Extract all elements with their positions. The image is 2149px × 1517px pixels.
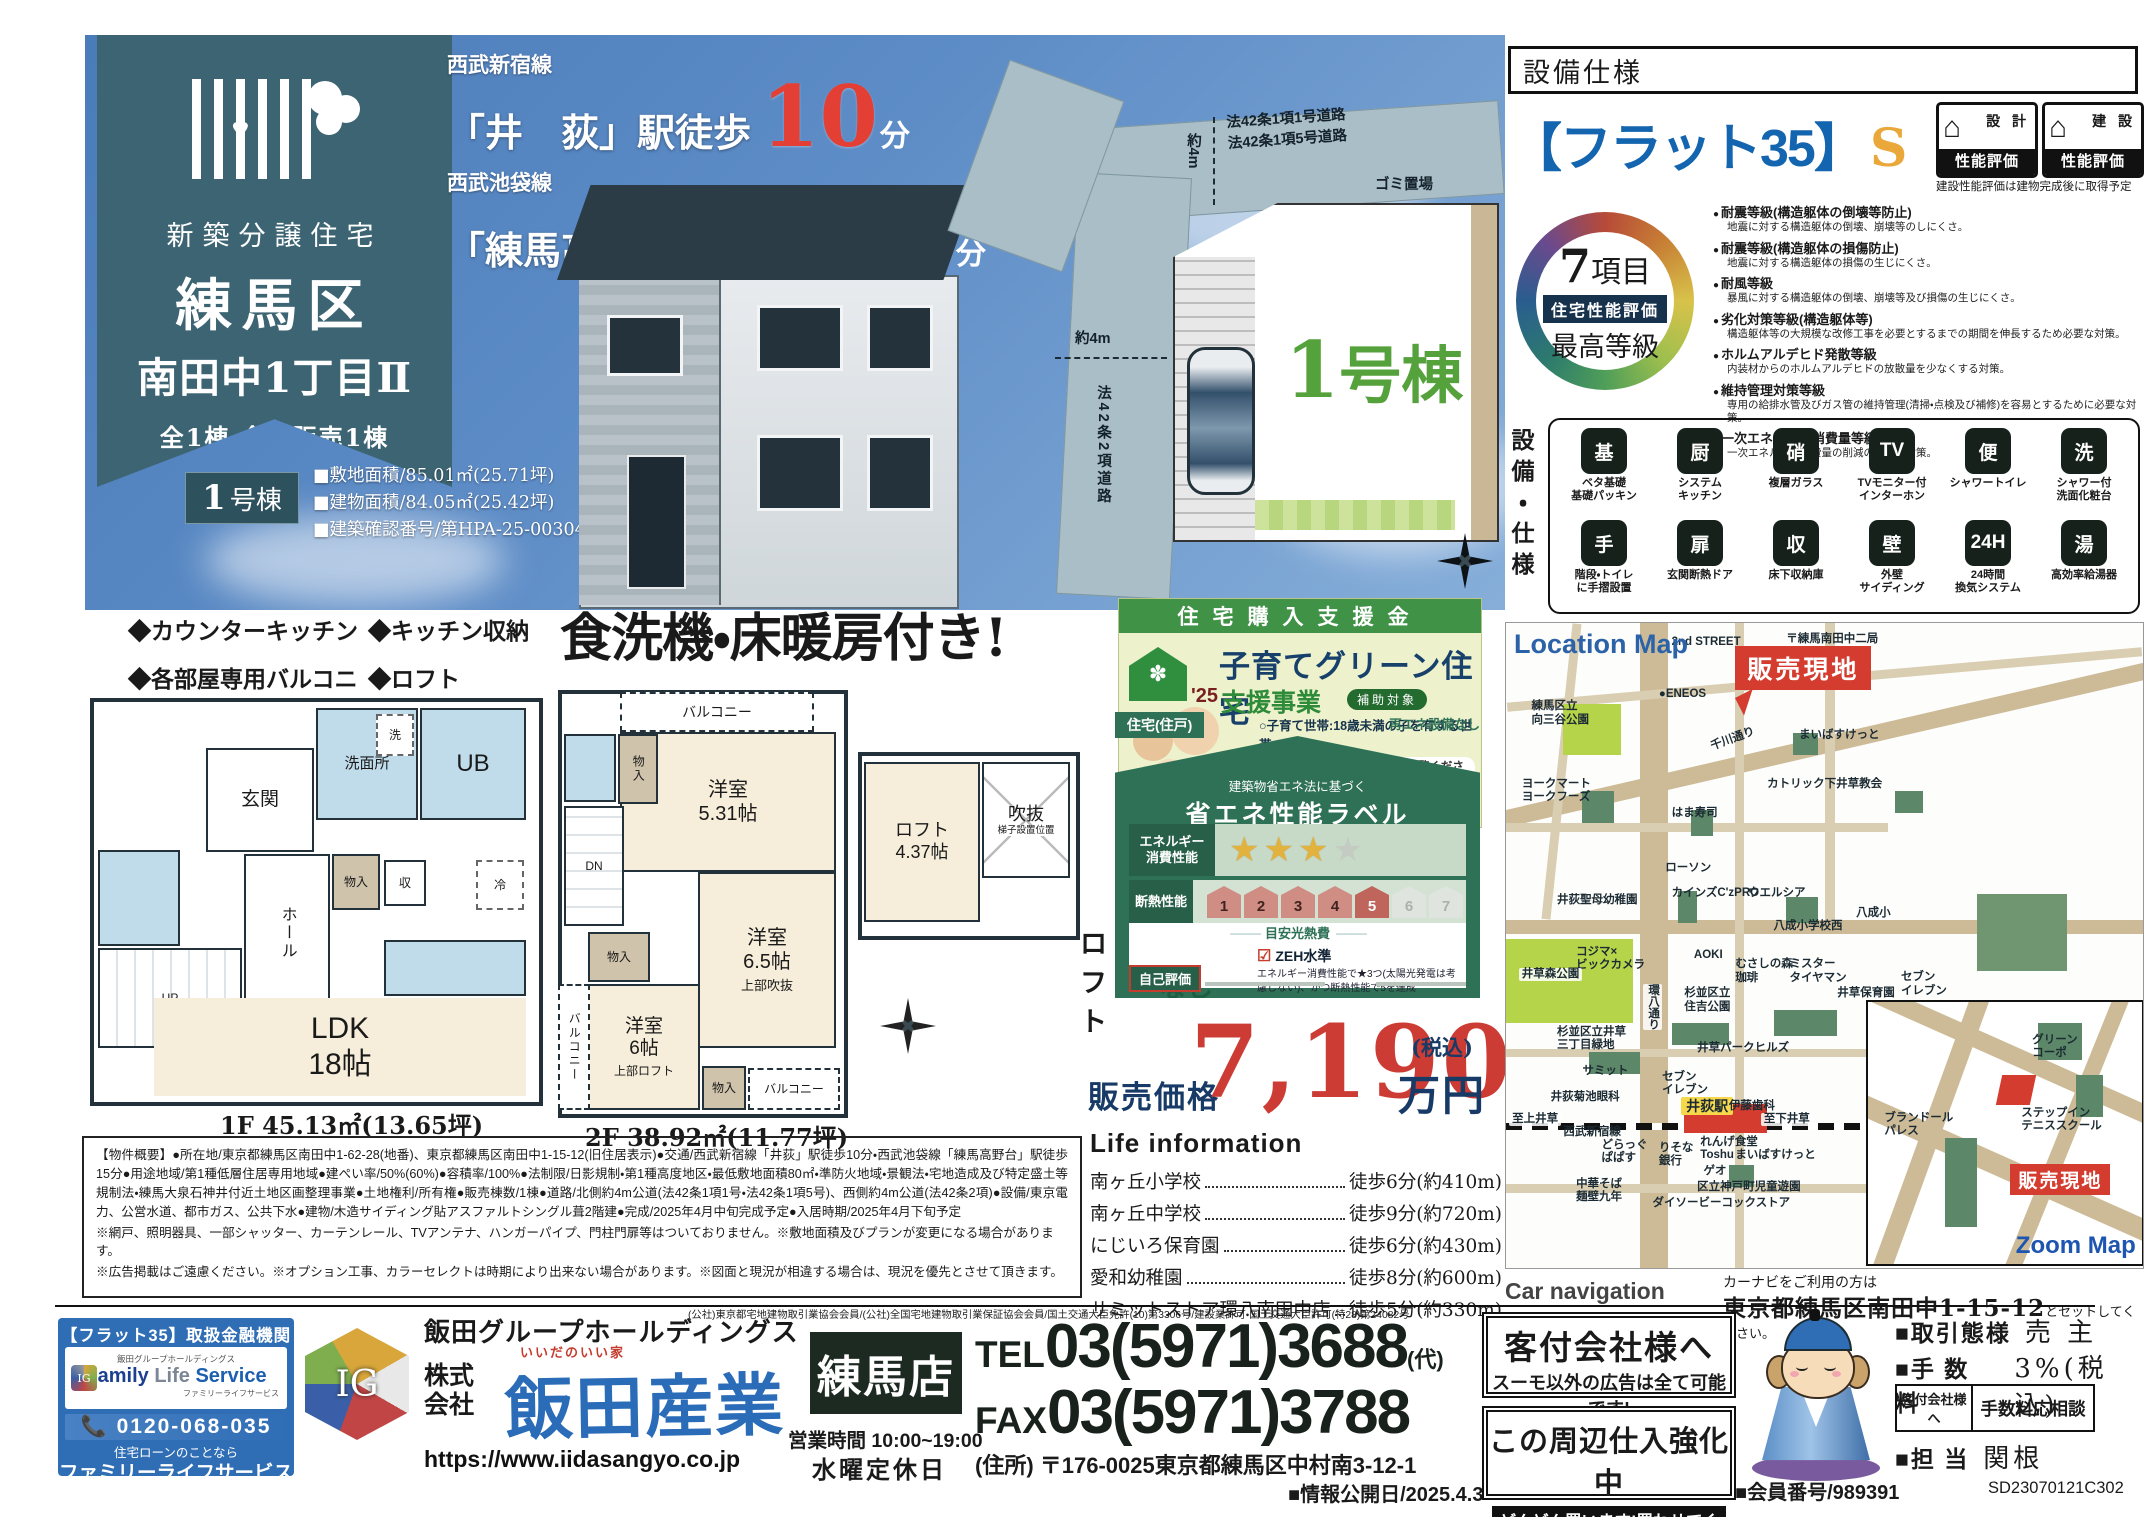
inset-map-label: ブランドール パレス bbox=[1884, 1112, 1953, 1138]
life-info-value: 徒歩9分(約720m) bbox=[1349, 1200, 1502, 1226]
equipment-icon: 洗 bbox=[2061, 428, 2107, 474]
dotted-leader bbox=[1224, 1250, 1345, 1252]
performance-rating-item: 耐震等級(構造躯体の損傷防止)地震に対する構造躯体の損傷の生じにくさ。 bbox=[1713, 238, 2145, 270]
inset-building bbox=[1945, 1138, 1978, 1227]
equipment-item: TVTVモニター付 インターホン bbox=[1844, 428, 1940, 516]
tel-label: TEL bbox=[975, 1334, 1045, 1376]
spec-panel-header: 設備仕様 bbox=[1508, 46, 2138, 94]
badge-eval-label: 性能評価 bbox=[2045, 149, 2141, 175]
fridge-space: 冷 bbox=[476, 860, 524, 910]
void-space: 吹抜 梯子設置位置 bbox=[982, 762, 1070, 878]
walk-minutes: 10 bbox=[761, 79, 878, 155]
map-label: カトリック下井草教会 bbox=[1767, 778, 1882, 791]
ig-monogram: IG bbox=[336, 1364, 379, 1405]
rating-title: 劣化対策等級(構造躯体等) bbox=[1713, 309, 2145, 328]
self-eval-tag: 自己評価 bbox=[1129, 965, 1201, 992]
map-label: 井草保育園 bbox=[1837, 987, 1895, 1000]
green-house-icon: ✽ bbox=[1129, 647, 1187, 701]
room-laundry: 洗 bbox=[376, 714, 414, 756]
company-name: 飯田産業 bbox=[504, 1350, 786, 1454]
map-label: 区立神戸町児童遊園 bbox=[1697, 1181, 1801, 1194]
map-label: 〒練馬南田中二局 bbox=[1786, 633, 1878, 646]
mascot-hat bbox=[1784, 1317, 1852, 1351]
rating-title: 耐震等級(構造躯体の倒壊等防止) bbox=[1713, 202, 2145, 221]
fls-group-small: 飯田グループホールディングス bbox=[65, 1353, 287, 1365]
floor-plans: 洗面所 洗 UB 玄関 ホール UP 物入 収 冷 LDK 18帖 1F 45.… bbox=[80, 690, 1090, 1150]
seven-items-ring: 7項目 住宅性能評価 最高等級 bbox=[1516, 212, 1694, 390]
insulation-row: 断熱性能 1234567 bbox=[1129, 880, 1466, 924]
site-plan-dimension-v: 約4m bbox=[1183, 133, 1204, 168]
fax-number: 03(5971)3788 bbox=[1047, 1382, 1409, 1444]
equipment-icon: 硝 bbox=[1773, 428, 1819, 474]
fine-print-bar bbox=[1376, 982, 1466, 986]
outline-note1: ※網戸、照明器具、一部シャッター、カーテンレール、TVアンテナ、ハンガーパイプ、… bbox=[96, 1224, 1068, 1262]
flat35-s: S bbox=[1870, 118, 1906, 179]
cost-label: 目安光熱費 bbox=[1129, 923, 1466, 942]
map-label: ウエルシア bbox=[1748, 887, 1806, 900]
equipment-label: 複層ガラス bbox=[1748, 477, 1844, 490]
insulation-scale: 1234567 bbox=[1193, 880, 1466, 924]
map-label: ●ENEOS bbox=[1659, 688, 1706, 701]
map-label: 井荻菊池眼科 bbox=[1551, 1091, 1620, 1104]
tree-icon bbox=[316, 109, 342, 135]
agent-notice-box2: この周辺仕入強化中 どんどん買います!買わせてください。 bbox=[1482, 1406, 1736, 1500]
map-road bbox=[1541, 623, 1581, 919]
map-label: 井草森公園 bbox=[1519, 968, 1583, 981]
equipment-item: 硝複層ガラス bbox=[1748, 428, 1844, 516]
rail-line-name: 西武新宿線 bbox=[447, 49, 1027, 79]
floor-plan-2f: バルコニー 洋室 5.31帖 物入 DN 物入 洋室 6.5帖 上部吹抜 洋室 … bbox=[558, 690, 848, 1118]
closet: 物入 bbox=[332, 854, 380, 910]
equipment-label: 階段・トイレ に手摺設置 bbox=[1556, 569, 1652, 594]
closet: 物入 bbox=[618, 734, 658, 804]
flat35-text: 【フラット35】 bbox=[1510, 120, 1864, 178]
zoom-map-inset: 販売現地 グリーン コーポステップイン テニススクールブランドール パレス Zo… bbox=[1866, 1000, 2144, 1265]
rating-description: 内装材からのホルムアルデヒドの放散量を少なくする対策。 bbox=[1713, 363, 2145, 376]
house-window bbox=[607, 315, 683, 376]
energy-renewable-note: 再エネ設備なし bbox=[1389, 714, 1480, 733]
plot-unit-suffix: 号棟 bbox=[1339, 342, 1463, 411]
outline-note2: ※広告掲載はご遠慮ください。※オプション工事、カラーセレクトは時期により出来ない… bbox=[96, 1263, 1068, 1282]
life-info-row: 南ヶ丘中学校徒歩9分(約720m) bbox=[1090, 1200, 1502, 1226]
badge-eval-label: 性能評価 bbox=[1939, 149, 2035, 175]
rating-title: 耐風等級 bbox=[1713, 273, 2145, 292]
map-label: 井荻聖母幼稚園 bbox=[1557, 894, 1638, 907]
life-info-title: Life information bbox=[1090, 1128, 1302, 1159]
map-label: 杉並区立井草 三丁目緑地 bbox=[1557, 1026, 1626, 1052]
map-label: ミスター タイヤマン bbox=[1789, 958, 1846, 984]
site-plan-road-label-west: 法42条2項道路 bbox=[1093, 385, 1114, 506]
tel-suffix: (代) bbox=[1407, 1342, 1444, 1374]
site-plan-trash-label: ゴミ置場 bbox=[1375, 173, 1433, 194]
ladder-position-label: 梯子設置位置 bbox=[997, 825, 1054, 836]
insulation-label: 断熱性能 bbox=[1129, 880, 1193, 924]
map-site-flag: 販売現地 bbox=[1735, 646, 1871, 690]
performance-rating-item: 劣化対策等級(構造躯体等)構造躯体等の大規模な改修工事を必要とするまでの期間を伸… bbox=[1713, 309, 2145, 341]
banner-title-ward: 練馬区 bbox=[97, 261, 452, 342]
holiday-note: 水曜定休日 bbox=[812, 1450, 947, 1485]
agent2-line1: この周辺仕入強化中 bbox=[1488, 1418, 1730, 1502]
banner-units-note: 全1棟・今回販売1棟 bbox=[97, 418, 452, 453]
map-label: はま寿司 bbox=[1672, 807, 1718, 820]
map-label: ローソン bbox=[1665, 862, 1711, 875]
closet: 物入 bbox=[702, 1066, 746, 1110]
flat35-title: 【フラット35】S bbox=[1510, 106, 1905, 181]
map-label: セブン イレブン bbox=[1901, 971, 1947, 997]
station-walk-text: 「井 荻」駅徒歩 bbox=[447, 102, 751, 157]
car-illustration bbox=[1187, 347, 1255, 495]
site-plan: 1号棟 法42条1項1号道路 法42条1項5号道路 ゴミ置場 約4m 約4m 法… bbox=[975, 55, 1500, 603]
map-title: Location Map bbox=[1514, 629, 1688, 660]
equipment-item: 24H24時間 換気システム bbox=[1940, 520, 2036, 608]
staff-row: ■担 当 関根 bbox=[1895, 1438, 2043, 1475]
agent-fee-left: 客付会社様へ bbox=[1897, 1386, 1973, 1430]
equipment-label: シャワー付 洗面化粧台 bbox=[2036, 477, 2132, 502]
life-info-name: 南ヶ丘中学校 bbox=[1090, 1200, 1201, 1226]
map-building bbox=[1774, 1010, 1838, 1036]
floor-plan-1f: 洗面所 洗 UB 玄関 ホール UP 物入 収 冷 LDK 18帖 bbox=[90, 698, 543, 1106]
inset-map-label: ステップイン テニススクール bbox=[2021, 1107, 2102, 1133]
room-toilet-2f bbox=[564, 734, 616, 802]
energy-label: 住宅(住戸) 再エネ設備なし 建築物省エネ法に基づく 省エネ性能ラベル エネルギ… bbox=[1115, 712, 1480, 1024]
headline: 食洗機・床暖房付き! bbox=[560, 596, 1080, 671]
room-toilet bbox=[98, 850, 180, 946]
room-ldk: LDK 18帖 bbox=[154, 998, 526, 1096]
plot-unit-label: 1号棟 bbox=[1285, 325, 1463, 416]
zeh-block: ZEH水準 エネルギー消費性能で★3つ(太陽光発電は考慮しない)、かつ断熱性能で… bbox=[1257, 946, 1462, 995]
equipment-icon: 便 bbox=[1965, 428, 2011, 474]
info-release-date: ■情報公開日/2025.4.3 bbox=[1288, 1478, 1484, 1507]
site-plan-dimension-h: 約4m bbox=[1075, 327, 1110, 348]
rating-description: 構造躯体等の大規模な改修工事を必要とするまでの期間を伸長するため必要な対策。 bbox=[1713, 328, 2145, 341]
agent-fee-table: 客付会社様へ 手数料応相談 bbox=[1895, 1384, 2095, 1432]
equipment-item: 手階段・トイレ に手摺設置 bbox=[1556, 520, 1652, 608]
closet: 物入 bbox=[588, 932, 650, 982]
equipment-item: 厨システム キッチン bbox=[1652, 428, 1748, 516]
life-info-value: 徒歩6分(約430m) bbox=[1349, 1232, 1502, 1258]
map-label: 中華そば 麺壁九年 bbox=[1576, 1178, 1622, 1204]
plot-side-strip bbox=[1471, 205, 1497, 540]
room-unit-bath: UB bbox=[420, 708, 526, 820]
agent-fee-right: 手数料応相談 bbox=[1973, 1386, 2093, 1430]
design-performance-badge: ⌂ 設 計 性能評価 bbox=[1936, 102, 2038, 178]
minutes-unit: 分 bbox=[880, 111, 910, 155]
house-window bbox=[757, 435, 843, 511]
map-label: どらっぐ ぱぱす bbox=[1602, 1139, 1648, 1165]
equipment-icon: 厨 bbox=[1677, 428, 1723, 474]
floor-plan-loft: ロフト 4.37帖 吹抜 梯子設置位置 bbox=[858, 752, 1080, 940]
mascot-cheek bbox=[1832, 1371, 1841, 1377]
equipment-label: シャワートイレ bbox=[1940, 477, 2036, 490]
map-label: セブン イレブン bbox=[1662, 1071, 1708, 1097]
balcony-top: バルコニー bbox=[620, 692, 814, 732]
equipment-icon: TV bbox=[1869, 428, 1915, 474]
mascot-cheek bbox=[1790, 1371, 1799, 1377]
energy-star: ★ bbox=[1263, 833, 1293, 867]
clover-icon: ✽ bbox=[1149, 661, 1167, 687]
equipment-icon: 手 bbox=[1581, 520, 1627, 566]
house-window bbox=[867, 305, 933, 371]
equipment-label: 24時間 換気システム bbox=[1940, 569, 2036, 594]
life-info-row: 南ヶ丘小学校徒歩6分(約410m) bbox=[1090, 1168, 1502, 1194]
map-label: ダイソービーコックストア bbox=[1653, 1197, 1791, 1210]
map-label: まいばすけっと bbox=[1735, 1149, 1816, 1162]
fls-name: ファミリーライフサービス bbox=[58, 1456, 294, 1485]
equipment-item: 収床下収納庫 bbox=[1748, 520, 1844, 608]
site-plan-road-label-north: 法42条1項1号道路 法42条1項5号道路 bbox=[1226, 103, 1348, 153]
price-unit-block: (税込) 万円 bbox=[1398, 1032, 1486, 1123]
equipment-icon: 壁 bbox=[1869, 520, 1915, 566]
equipment-item: 基ベタ基礎 基礎パッキン bbox=[1556, 428, 1652, 516]
energy-star: ★ bbox=[1229, 833, 1259, 867]
room-6: 洋室 6帖 上部ロフト bbox=[588, 984, 700, 1110]
equipment-label: 玄関断熱ドア bbox=[1652, 569, 1748, 582]
equipment-icon: 扉 bbox=[1677, 520, 1723, 566]
compass-icon bbox=[880, 998, 936, 1054]
car-navigation-label: Car navigation bbox=[1505, 1278, 1665, 1305]
performance-rating-item: 耐風等級暴風に対する構造躯体の倒壊、崩壊等及び損傷の生じにくさ。 bbox=[1713, 273, 2145, 305]
map-label: 井荻駅 bbox=[1681, 1097, 1733, 1115]
staff-value: 関根 bbox=[1983, 1438, 2043, 1475]
outline-main-text: 【物件概要】●所在地/東京都練馬区南田中1-62-28(地番)、東京都練馬区南田… bbox=[96, 1146, 1068, 1222]
map-label: ヨークマート ヨークフーズ bbox=[1522, 778, 1591, 804]
equipment-label: 高効率給湯器 bbox=[2036, 569, 2132, 582]
house-window bbox=[867, 435, 933, 511]
fls-kana-small: ファミリーライフサービス bbox=[65, 1388, 287, 1399]
energy-type-tab: 住宅(住戸) bbox=[1115, 712, 1204, 738]
inset-site-polygon bbox=[1996, 1075, 2036, 1105]
agent-notice-box1: 客付会社様へ スーモ以外の広告は全て可能です! bbox=[1482, 1312, 1736, 1398]
house-door bbox=[627, 455, 686, 589]
life-info-name: 南ヶ丘小学校 bbox=[1090, 1168, 1201, 1194]
fax-row: FAX 03(5971)3788 bbox=[975, 1382, 1409, 1444]
map-label: 至上井草 bbox=[1509, 1113, 1561, 1126]
flyer-page: ♥ 新築分譲住宅 練馬区 南田中1丁目Ⅱ 全1棟・今回販売1棟 1 号棟 ■敷地… bbox=[0, 0, 2149, 1517]
life-info-name: にじいろ保育園 bbox=[1090, 1232, 1220, 1258]
insulation-level: 3 bbox=[1281, 886, 1315, 918]
equipment-icon: 湯 bbox=[2061, 520, 2107, 566]
inset-site-flag: 販売現地 bbox=[2010, 1164, 2110, 1195]
car-navigation: Car navigation カーナビをご利用の方は 東京都練馬区南田中1-15… bbox=[1505, 1272, 2142, 1316]
station-access-main: 「井 荻」駅徒歩10分 bbox=[447, 79, 1027, 157]
room-6-5-label: 洋室 6.5帖 bbox=[743, 926, 791, 974]
balcony-left: バルコニー bbox=[558, 984, 590, 1110]
dotted-leader bbox=[1205, 1218, 1345, 1220]
room-6-sublabel: 上部ロフト bbox=[614, 1064, 674, 1078]
life-info-name: 愛和幼稚園 bbox=[1090, 1264, 1183, 1290]
house-icon: ⌂ bbox=[1943, 111, 1961, 145]
equipment-grid: 基ベタ基礎 基礎パッキン厨システム キッチン硝複層ガラスTVTVモニター付 イン… bbox=[1548, 418, 2140, 614]
badge-type-label: 設 計 bbox=[1986, 111, 2030, 131]
equipment-label: TVモニター付 インターホン bbox=[1844, 477, 1940, 502]
equipment-icon: 24H bbox=[1965, 520, 2011, 566]
room-6-label: 洋室 6帖 bbox=[625, 1016, 663, 1062]
deal-type-value: 売 主 bbox=[2025, 1312, 2097, 1349]
unit-number: 1 bbox=[202, 478, 226, 518]
banner-title-address: 南田中1丁目Ⅱ bbox=[97, 344, 452, 404]
dimension-line bbox=[1213, 117, 1215, 205]
equipment-item: 湯高効率給湯器 bbox=[2036, 520, 2132, 608]
house-roof bbox=[557, 185, 977, 280]
energy-stars: ★★★★ bbox=[1215, 824, 1466, 876]
company-url[interactable]: https://www.iidasangyo.co.jp bbox=[424, 1446, 740, 1473]
hero-section: ♥ 新築分譲住宅 練馬区 南田中1丁目Ⅱ 全1棟・今回販売1棟 1 号棟 ■敷地… bbox=[85, 35, 1505, 610]
inset-map-label: グリーン コーポ bbox=[2032, 1034, 2077, 1060]
equipment-label: 外壁 サイディング bbox=[1844, 569, 1940, 594]
price-unit: 万円 bbox=[1398, 1062, 1486, 1123]
title-banner: ♥ 新築分譲住宅 練馬区 南田中1丁目Ⅱ 全1棟・今回販売1棟 bbox=[97, 35, 452, 487]
member-number: ■会員番号/989391 bbox=[1735, 1476, 1899, 1505]
map-label: 西武新宿線 bbox=[1563, 1126, 1621, 1139]
iida-group-logo-icon: IG bbox=[305, 1328, 409, 1440]
feature-item: ◆キッチン収納 bbox=[368, 612, 588, 646]
tel-row: TEL 03(5971)3688 (代) bbox=[975, 1316, 1444, 1378]
stairs-down: DN bbox=[564, 806, 624, 926]
room-loft: ロフト 4.37帖 bbox=[864, 762, 980, 922]
map-label: カインズC'zPRO bbox=[1672, 887, 1759, 900]
map-label: 環八通り bbox=[1643, 984, 1662, 1030]
map-label: 八成小 bbox=[1853, 907, 1894, 920]
map-label: コジマ× ビックカメラ bbox=[1576, 946, 1645, 972]
spec-panel: 設備仕様 【フラット35】S ⌂ 設 計 性能評価 ⌂ 建 設 性能評価 建設性… bbox=[1508, 40, 2144, 625]
loft-caption: ロフト bbox=[1080, 922, 1107, 1039]
equipment-side-label: 設備・仕様 bbox=[1504, 428, 1538, 608]
construction-performance-badge: ⌂ 建 設 性能評価 bbox=[2042, 102, 2144, 178]
subsidy-header: 住宅購入支援金 bbox=[1119, 599, 1481, 633]
energy-law-line: 建築物省エネ法に基づく bbox=[1115, 776, 1480, 795]
equipment-item: 扉玄関断熱ドア bbox=[1652, 520, 1748, 608]
dotted-leader bbox=[1205, 1186, 1345, 1188]
room-6-5-sublabel: 上部吹抜 bbox=[741, 978, 793, 994]
house-rendering bbox=[557, 185, 977, 615]
staff-label: ■担 当 bbox=[1895, 1440, 1969, 1474]
life-info-row: 愛和幼稚園徒歩8分(約600m) bbox=[1090, 1264, 1502, 1290]
performance-rating-item: ホルムアルデヒド発散等級内装材からのホルムアルデヒドの放散量を少なくする対策。 bbox=[1713, 344, 2145, 376]
life-info-row: にじいろ保育園徒歩6分(約430m) bbox=[1090, 1232, 1502, 1258]
fls-header: 【フラット35】取扱金融機関 bbox=[58, 1322, 294, 1346]
map-label: むさしの森 珈琲 bbox=[1735, 958, 1793, 984]
company-type: 株式 会社 bbox=[424, 1362, 474, 1420]
zeh-title: ZEH水準 bbox=[1257, 946, 1462, 966]
balcony-bottom: バルコニー bbox=[748, 1068, 840, 1110]
zoom-map-title: Zoom Map bbox=[2016, 1232, 2136, 1260]
map-label: 八成小学校西 bbox=[1774, 920, 1843, 933]
map-label: AOKI bbox=[1694, 949, 1723, 962]
performance-rating-item: 耐震等級(構造躯体の倒壊等防止)地震に対する構造躯体の倒壊、崩壊等のしにくさ。 bbox=[1713, 202, 2145, 234]
map-building bbox=[1895, 791, 1924, 814]
banner-subtitle: 新築分譲住宅 bbox=[97, 214, 452, 253]
ring-line1: 7項目 bbox=[1559, 239, 1651, 293]
equipment-item: 壁外壁 サイディング bbox=[1844, 520, 1940, 608]
mascot-character bbox=[1748, 1315, 1884, 1483]
plot-grass bbox=[1255, 500, 1455, 530]
energy-star: ★ bbox=[1332, 833, 1362, 867]
insulation-level: 4 bbox=[1318, 886, 1352, 918]
deal-type-label: ■取引態様 bbox=[1895, 1314, 2011, 1348]
deal-type-row: ■取引態様 売 主 bbox=[1895, 1312, 2097, 1349]
map-label: サミット bbox=[1582, 1065, 1628, 1078]
insulation-level: 2 bbox=[1244, 886, 1278, 918]
map-label: 練馬区立 向三谷公園 bbox=[1531, 700, 1589, 726]
price-tax-note: (税込) bbox=[1398, 1032, 1486, 1062]
equipment-icon: 収 bbox=[1773, 520, 1819, 566]
fls-logo-card: IG 飯田グループホールディングス Family Life Service ファ… bbox=[65, 1347, 287, 1409]
rating-title: 耐震等級(構造躯体の損傷防止) bbox=[1713, 238, 2145, 257]
badge-note: 建設性能評価は建物完成後に取得予定 bbox=[1936, 180, 2146, 196]
equipment-label: 床下収納庫 bbox=[1748, 569, 1844, 582]
ig-cube-icon: IG bbox=[71, 1365, 97, 1391]
agent1-title: 客付会社様へ bbox=[1488, 1321, 1730, 1369]
insulation-level: 1 bbox=[1207, 886, 1241, 918]
business-hours: 営業時間 10:00~19:00 bbox=[788, 1424, 983, 1453]
map-label: まいばすけっと bbox=[1799, 729, 1880, 742]
map-label: ゲオ bbox=[1703, 1165, 1726, 1178]
branch-name: 練馬店 bbox=[810, 1332, 962, 1414]
branch-address: (住所) 〒176-0025東京都練馬区中村南3-12-1 bbox=[975, 1448, 1416, 1480]
member-code: SD23070121C302 bbox=[1988, 1479, 2124, 1498]
room-6-5: 洋室 6.5帖 上部吹抜 bbox=[698, 872, 836, 1048]
life-info-list: 南ヶ丘小学校徒歩6分(約410m)南ヶ丘中学校徒歩9分(約720m)にじいろ保育… bbox=[1090, 1168, 1502, 1328]
ring-items-label: 項目 bbox=[1591, 255, 1651, 290]
kitchen-counter bbox=[384, 940, 526, 996]
badge-type-label: 建 設 bbox=[2092, 111, 2136, 131]
map-label: 千川通り bbox=[1709, 725, 1757, 753]
mascot-eye bbox=[1796, 1363, 1808, 1371]
dotted-leader bbox=[1187, 1282, 1345, 1284]
agent2-line2: どんどん買います!買わせてください。 bbox=[1492, 1506, 1726, 1517]
life-info-value: 徒歩8分(約600m) bbox=[1349, 1264, 1502, 1290]
subsidy-badge: 補助対象 bbox=[1347, 689, 1427, 710]
storage: 収 bbox=[384, 860, 426, 906]
energy-consumption-label: エネルギー 消費性能 bbox=[1129, 824, 1215, 876]
fence-icon bbox=[192, 79, 312, 179]
unit-suffix: 号棟 bbox=[230, 480, 282, 517]
equipment-item: 洗シャワー付 洗面化粧台 bbox=[2036, 428, 2132, 516]
rating-description: 暴風に対する構造躯体の倒壊、崩壊等及び損傷の生じにくさ。 bbox=[1713, 292, 2145, 305]
dimension-line bbox=[1055, 357, 1167, 359]
feature-item: ◆カウンターキッチン bbox=[128, 612, 368, 646]
energy-star: ★ bbox=[1298, 833, 1328, 867]
rating-description: 地震に対する構造躯体の損傷の生じにくさ。 bbox=[1713, 257, 2145, 270]
map-label: 井草パークヒルズ bbox=[1697, 1042, 1789, 1055]
property-outline: 【物件概要】●所在地/東京都練馬区南田中1-62-28(地番)、東京都練馬区南田… bbox=[82, 1136, 1082, 1298]
insulation-level: 7 bbox=[1429, 886, 1463, 918]
rating-title: 維持管理対策等級 bbox=[1713, 380, 2145, 399]
fls-phone[interactable]: 📞 0120-068-035 bbox=[65, 1414, 287, 1440]
tel-number[interactable]: 03(5971)3688 bbox=[1045, 1316, 1407, 1378]
fls-word2: Life bbox=[154, 1365, 190, 1387]
equipment-label: システム キッチン bbox=[1652, 477, 1748, 502]
heart-icon: ♥ bbox=[232, 113, 250, 147]
map-school-hachinari bbox=[1977, 894, 2066, 971]
family-life-service-box: 【フラット35】取扱金融機関 IG 飯田グループホールディングス Family … bbox=[58, 1318, 294, 1476]
fine-print-bar bbox=[1205, 982, 1325, 986]
void-label: 吹抜 bbox=[1008, 804, 1044, 826]
site-plan-road-west bbox=[1056, 172, 1192, 599]
mascot-topknot bbox=[1810, 1309, 1820, 1321]
room-entrance: 玄関 bbox=[206, 748, 314, 852]
map-label: 伊藤歯科 bbox=[1729, 1100, 1775, 1113]
insulation-level: 5 bbox=[1355, 886, 1389, 918]
life-info-value: 徒歩6分(約410m) bbox=[1349, 1168, 1502, 1194]
insulation-level: 6 bbox=[1392, 886, 1426, 918]
house-window bbox=[757, 305, 843, 371]
energy-card: 建築物省エネ法に基づく 省エネ性能ラベル エネルギー 消費性能 ★★★★ 断熱性… bbox=[1115, 736, 1480, 998]
ring-line3: 最高等級 bbox=[1551, 325, 1659, 364]
equipment-item: 便シャワートイレ bbox=[1940, 428, 2036, 516]
fls-logo-text: Family Life Service bbox=[65, 1365, 287, 1388]
location-map: Location Map 販売現地 2nd STREET〒練馬南田中二局●ENE… bbox=[1505, 622, 2144, 1269]
